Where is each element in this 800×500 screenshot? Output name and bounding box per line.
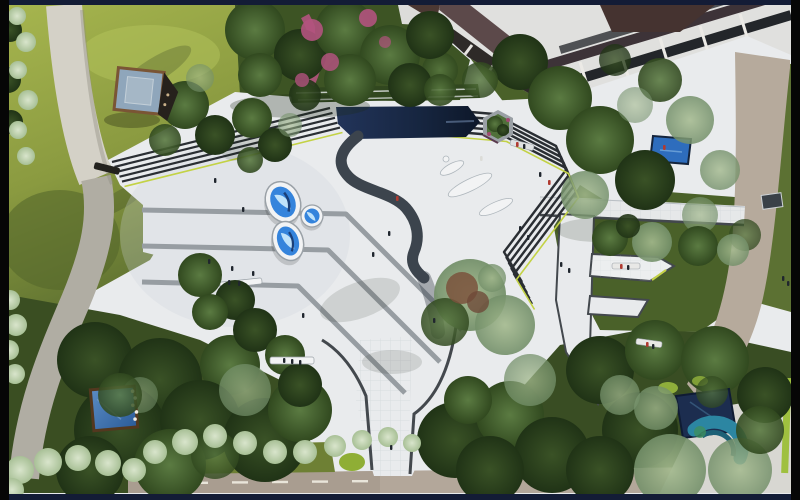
bench-east-arm (612, 263, 640, 269)
rendering-canvas (0, 0, 800, 500)
aerial-rendering (0, 0, 800, 500)
pond-overhang-tree (98, 373, 142, 417)
signboard (761, 193, 783, 210)
grove-north (225, 0, 456, 111)
pool-highlight (446, 121, 474, 122)
